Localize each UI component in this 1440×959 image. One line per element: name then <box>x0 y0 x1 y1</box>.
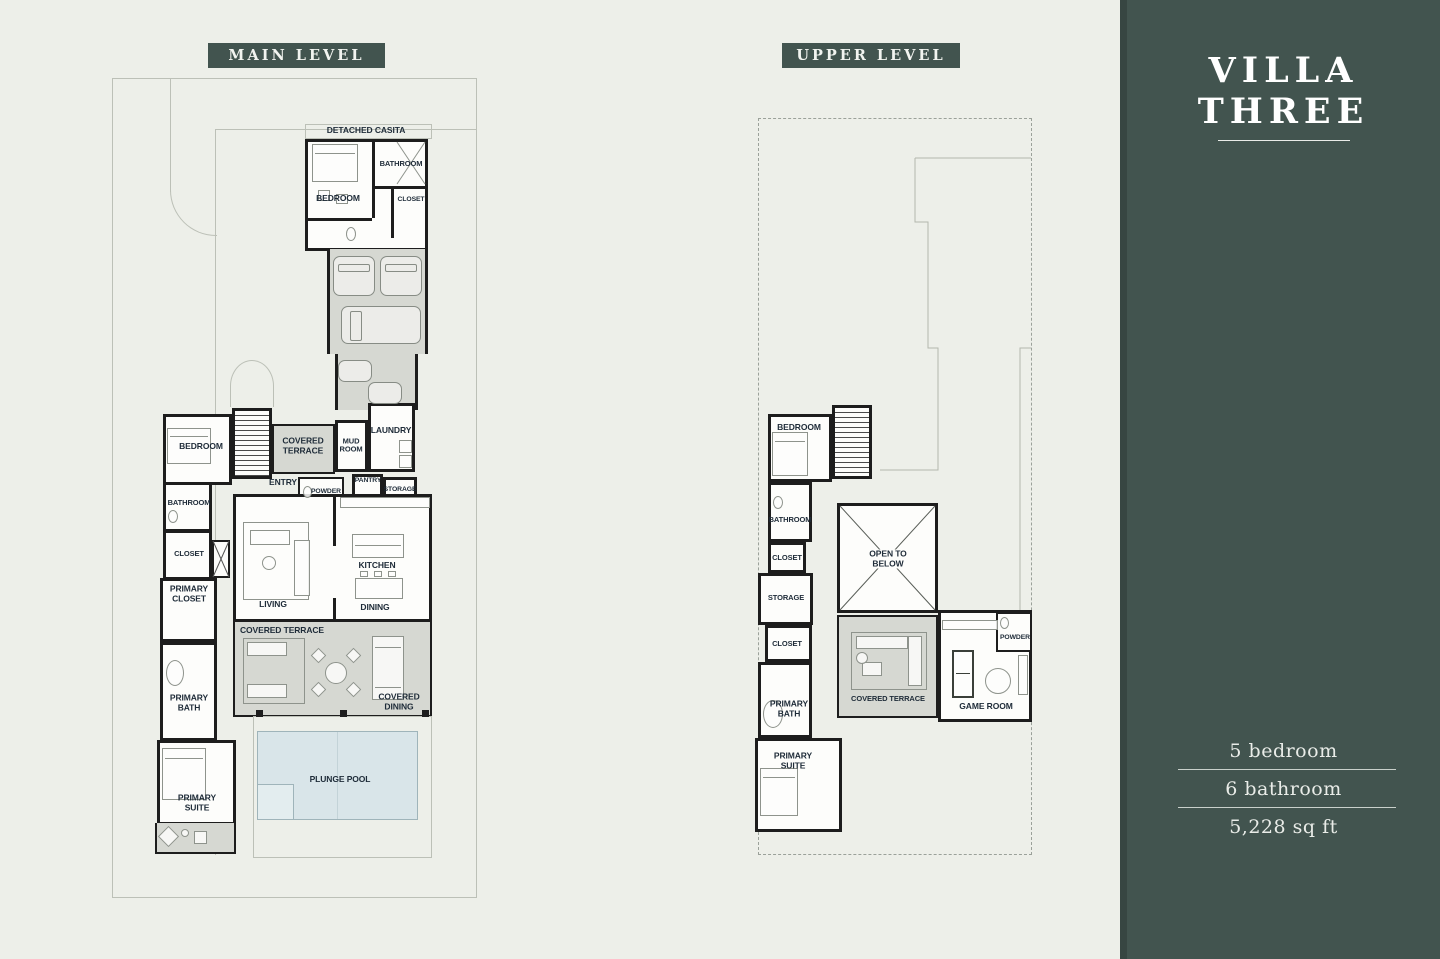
plunge-pool-label: PLUNGE POOL <box>310 775 371 785</box>
villa-info-panel: VILLA THREE 5 bedroom 6 bathroom 5,228 s… <box>1120 0 1440 959</box>
detached-casita-label: DETACHED CASITA <box>327 126 405 136</box>
outdoor-dining-table-icon <box>372 636 404 700</box>
site-line <box>170 78 171 192</box>
main-level-header: MAIN LEVEL <box>208 43 385 68</box>
chair-icon <box>360 571 368 577</box>
sofa-icon <box>247 684 287 698</box>
coffee-table-icon <box>262 556 276 570</box>
desk-icon <box>1018 655 1028 695</box>
primary-closet-label: PRIMARY CLOSET <box>162 584 216 603</box>
dining-label: DINING <box>360 603 389 613</box>
stairs <box>232 408 272 479</box>
pool-step <box>257 784 294 820</box>
pool-table-icon <box>952 650 974 698</box>
chair-icon <box>388 571 396 577</box>
primary-suite-label: PRIMARY SUITE <box>171 793 223 812</box>
golf-cart-icon <box>368 382 402 404</box>
mud-room-label: MUD ROOM <box>336 438 366 455</box>
bed-icon <box>760 768 798 816</box>
kitchen-counter <box>340 497 430 508</box>
side-table-icon <box>856 652 868 664</box>
kitchen-label: KITCHEN <box>358 561 395 571</box>
casita-bedroom-label: BEDROOM <box>316 194 360 204</box>
toilet-icon <box>773 496 783 509</box>
bedroom-count: 5 bedroom <box>1127 740 1440 762</box>
closet-label: CLOSET <box>174 550 204 558</box>
casita-wall <box>372 139 375 218</box>
interior-wall <box>333 598 336 622</box>
upper-closet-b-label: CLOSET <box>772 640 802 648</box>
storage-label: STORAGE <box>384 486 417 494</box>
main-level-header-label: MAIN LEVEL <box>228 47 364 64</box>
upper-storage-label: STORAGE <box>768 594 804 602</box>
entry-terrace-label: COVERED TERRACE <box>277 436 329 455</box>
roofline-outline <box>758 118 1032 855</box>
coffee-table-icon <box>862 662 882 676</box>
upper-closet-a-label: CLOSET <box>772 554 802 562</box>
closet-hatch-icon <box>212 540 230 578</box>
dining-table-icon <box>355 578 403 599</box>
game-room-label: GAME ROOM <box>959 702 1012 712</box>
sofa-icon <box>250 530 290 545</box>
vehicle-icon <box>380 256 422 296</box>
entry-walk-arch <box>230 360 274 407</box>
kitchen-island <box>352 534 404 558</box>
table-icon <box>181 829 189 837</box>
entry-label: ENTRY <box>269 478 297 488</box>
laundry-label: LAUNDRY <box>371 426 412 436</box>
bed-icon <box>772 432 808 476</box>
outdoor-table-icon <box>325 662 347 684</box>
primary-bath-label: PRIMARY BATH <box>164 693 214 712</box>
chair-icon <box>194 831 207 844</box>
title-underline <box>1218 140 1350 141</box>
upper-level-header-label: UPPER LEVEL <box>796 47 945 64</box>
sofa-icon <box>294 540 310 596</box>
game-table-icon <box>985 668 1011 694</box>
toilet-icon <box>346 227 356 241</box>
villa-title: VILLA THREE <box>1127 50 1440 132</box>
toilet-icon <box>1000 617 1009 629</box>
pantry-label: PANTRY <box>355 477 382 485</box>
toilet-icon <box>168 510 178 523</box>
game-room-counter <box>942 620 998 630</box>
chair-icon <box>374 571 382 577</box>
upper-powder-label: POWDER <box>1000 634 1030 642</box>
casita-wall <box>391 186 394 238</box>
interior-wall <box>333 494 336 546</box>
upper-covered-terrace-label: COVERED TERRACE <box>851 695 925 703</box>
sofa-icon <box>908 636 922 686</box>
bedroom-label: BEDROOM <box>179 442 223 452</box>
bathroom-count: 6 bathroom <box>1127 778 1440 800</box>
sofa-icon <box>856 636 908 649</box>
upper-primary-bath-label: PRIMARY BATH <box>765 699 813 718</box>
covered-terrace-label: COVERED TERRACE <box>240 626 324 636</box>
upper-level-header: UPPER LEVEL <box>782 43 960 68</box>
vehicle-icon <box>341 306 421 344</box>
terrace-post <box>256 710 263 717</box>
living-label: LIVING <box>259 600 287 610</box>
bed-icon <box>312 144 358 182</box>
upper-primary-suite-label: PRIMARY SUITE <box>767 751 819 770</box>
golf-cart-icon <box>338 360 372 382</box>
casita-bathroom-label: BATHROOM <box>380 160 423 168</box>
dryer-icon <box>399 455 412 468</box>
casita-closet-label: CLOSET <box>398 196 425 204</box>
stat-divider <box>1178 769 1396 770</box>
upper-bedroom-label: BEDROOM <box>777 423 821 433</box>
open-to-below-label: OPEN TO BELOW <box>857 549 919 568</box>
bathroom-label: BATHROOM <box>168 499 211 507</box>
square-footage: 5,228 sq ft <box>1127 816 1440 838</box>
washer-icon <box>399 440 412 453</box>
sofa-icon <box>247 642 287 656</box>
stat-divider <box>1178 807 1396 808</box>
casita-wall <box>372 186 428 189</box>
tub-icon <box>166 660 184 686</box>
covered-dining-label: COVERED DINING <box>372 692 427 711</box>
upper-bathroom-label: BATHROOM <box>769 516 812 524</box>
floor-plan-sheet: MAIN LEVEL UPPER LEVEL DETACHED CASITA B… <box>0 0 1440 959</box>
casita-wall <box>305 218 372 221</box>
terrace-post <box>340 710 347 717</box>
vehicle-icon <box>333 256 375 296</box>
powder-label: POWDER <box>311 488 341 496</box>
